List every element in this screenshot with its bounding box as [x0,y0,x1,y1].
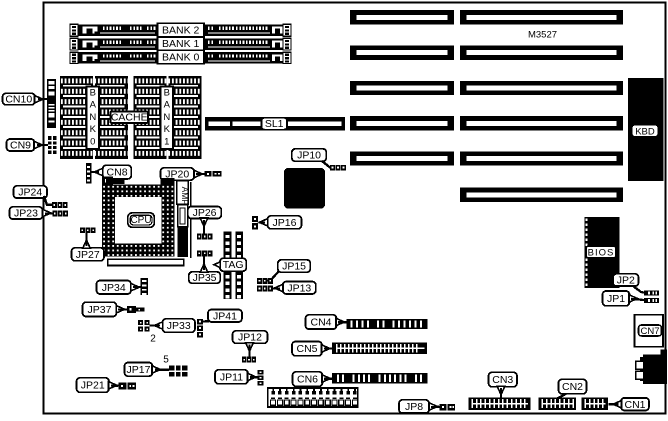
svg-text:JP35: JP35 [193,272,217,284]
svg-text:JP11: JP11 [220,371,243,383]
svg-text:AMP: AMP [180,187,190,206]
svg-text:JP12: JP12 [238,332,262,344]
svg-text:CN2: CN2 [562,381,583,393]
svg-text:N: N [163,112,170,123]
svg-text:B: B [164,88,170,99]
svg-text:CN9: CN9 [10,140,31,152]
svg-text:1: 1 [164,136,169,147]
svg-text:TAG: TAG [223,259,244,271]
svg-text:A: A [90,100,97,111]
svg-text:CN7: CN7 [640,326,659,337]
svg-text:BANK 0: BANK 0 [162,52,200,64]
svg-text:CACHE: CACHE [111,111,148,123]
svg-text:JP24: JP24 [18,187,42,199]
svg-text:JP23: JP23 [14,208,38,220]
svg-text:JP27: JP27 [76,249,100,261]
svg-text:A: A [164,100,171,111]
svg-text:JP17: JP17 [127,364,151,376]
svg-text:N: N [89,112,96,123]
svg-text:K: K [90,124,97,135]
svg-text:M3527: M3527 [528,30,557,41]
svg-text:CN1: CN1 [624,399,645,411]
svg-text:CN3: CN3 [492,374,513,386]
svg-text:B: B [90,88,96,99]
svg-text:CN10: CN10 [5,94,32,106]
svg-text:BIOS: BIOS [588,247,615,258]
svg-text:JP34: JP34 [102,282,126,294]
svg-text:0: 0 [90,136,95,147]
svg-text:CN6: CN6 [297,374,318,386]
svg-text:CPU: CPU [130,215,151,226]
svg-text:CN4: CN4 [310,317,331,329]
svg-text:BANK 1: BANK 1 [162,38,200,50]
svg-text:K: K [164,124,171,135]
svg-text:JP1: JP1 [607,293,625,305]
svg-text:JP15: JP15 [282,261,306,273]
svg-text:CN5: CN5 [296,343,317,355]
svg-text:SL1: SL1 [265,118,284,130]
svg-text:2: 2 [150,334,156,345]
svg-text:KBD: KBD [635,126,655,137]
svg-text:JP10: JP10 [297,150,321,162]
svg-text:BANK 2: BANK 2 [162,25,200,37]
svg-text:JP41: JP41 [213,310,237,322]
svg-text:JP37: JP37 [88,304,112,316]
svg-text:JP2: JP2 [617,275,635,287]
svg-text:JP21: JP21 [81,380,105,392]
svg-text:JP16: JP16 [273,217,297,229]
svg-text:JP13: JP13 [287,282,311,294]
svg-text:JP8: JP8 [405,401,423,413]
svg-text:JP33: JP33 [167,320,191,332]
svg-text:5: 5 [163,355,169,366]
